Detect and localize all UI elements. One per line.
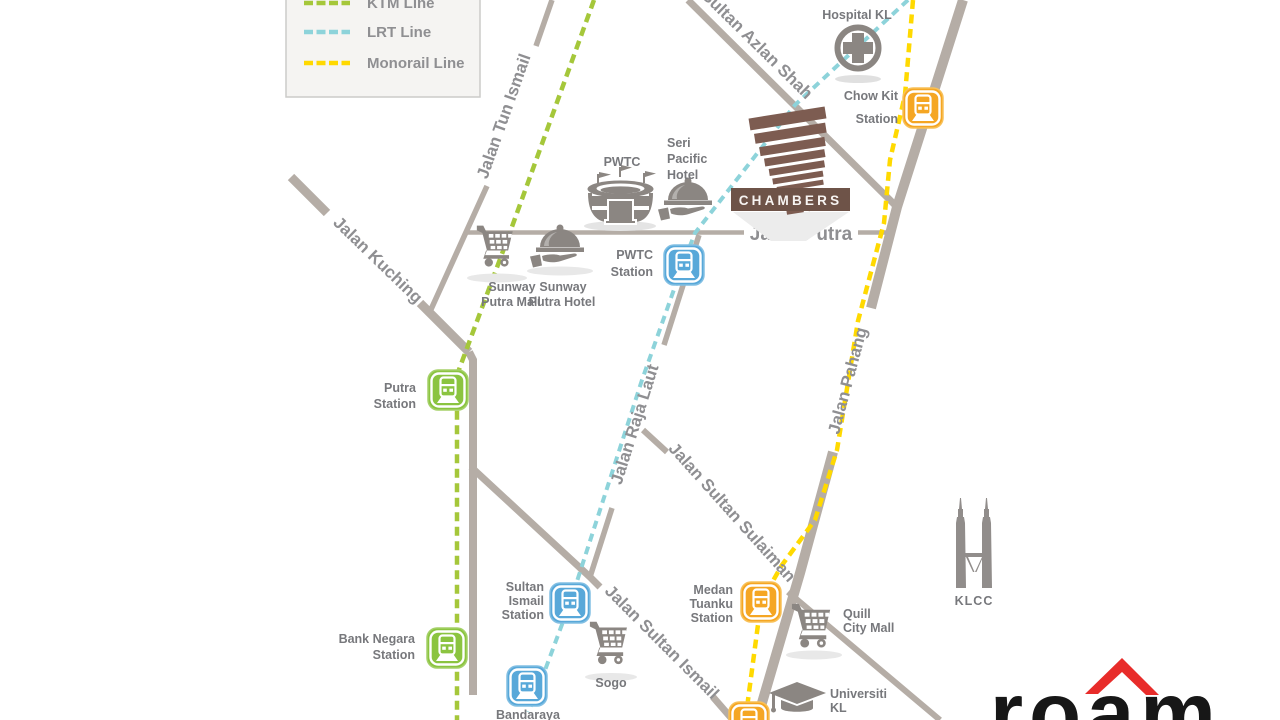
svg-text:Hotel: Hotel xyxy=(667,168,698,182)
svg-text:Universiti: Universiti xyxy=(830,687,887,701)
svg-text:Monorail Line: Monorail Line xyxy=(367,55,465,72)
svg-text:Bandaraya: Bandaraya xyxy=(496,708,561,720)
svg-text:CHAMBERS: CHAMBERS xyxy=(739,193,843,208)
svg-text:Hospital KL: Hospital KL xyxy=(822,8,892,22)
svg-text:Sogo: Sogo xyxy=(595,676,627,690)
svg-text:Quill: Quill xyxy=(843,607,871,621)
svg-text:KLCC: KLCC xyxy=(955,594,994,608)
svg-text:PWTC: PWTC xyxy=(616,248,653,262)
svg-text:Sultan: Sultan xyxy=(506,580,544,594)
svg-text:Ismail: Ismail xyxy=(509,594,544,608)
svg-text:Tuanku: Tuanku xyxy=(689,597,733,611)
svg-text:Putra: Putra xyxy=(384,381,417,395)
svg-text:Sunway: Sunway xyxy=(539,280,586,294)
svg-text:KTM Line: KTM Line xyxy=(367,0,435,12)
svg-text:LRT Line: LRT Line xyxy=(367,24,431,41)
svg-text:Station: Station xyxy=(611,265,653,279)
svg-text:Medan: Medan xyxy=(693,583,733,597)
svg-text:Putra Hotel: Putra Hotel xyxy=(529,295,596,309)
svg-text:Station: Station xyxy=(374,397,416,411)
svg-text:Station: Station xyxy=(691,611,733,625)
svg-text:Station: Station xyxy=(502,608,544,622)
svg-text:City Mall: City Mall xyxy=(843,621,894,635)
svg-text:KL: KL xyxy=(830,701,847,715)
svg-text:Sunway: Sunway xyxy=(488,280,535,294)
svg-text:Station: Station xyxy=(373,648,415,662)
svg-text:Seri: Seri xyxy=(667,136,691,150)
svg-text:Bank Negara: Bank Negara xyxy=(339,632,416,646)
svg-text:Pacific: Pacific xyxy=(667,152,707,166)
svg-text:Station: Station xyxy=(856,112,898,126)
svg-text:PWTC: PWTC xyxy=(604,155,641,169)
svg-text:Chow Kit: Chow Kit xyxy=(844,89,899,103)
